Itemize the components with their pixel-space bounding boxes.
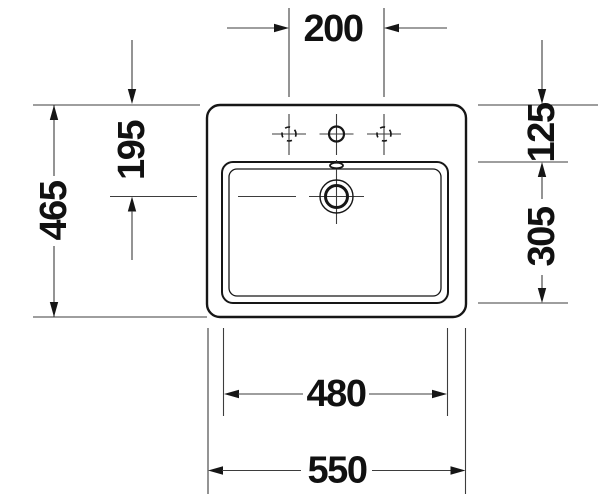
dim-label-basin-depth: 305 (521, 206, 563, 266)
dim-label-overall-width: 550 (308, 450, 367, 492)
faucet-holes (272, 114, 401, 155)
arrowhead-right-icon (274, 24, 289, 32)
arrowhead-left-icon (384, 24, 399, 32)
arrowhead-right-icon (432, 390, 447, 398)
dimension-basin-width: 480 (224, 328, 448, 416)
basin-inner-wall (229, 169, 441, 296)
arrowhead-right-icon (451, 466, 466, 474)
dimension-right-side: 125 305 (478, 40, 598, 303)
arrowhead-down-icon (50, 302, 58, 317)
dim-label-overall-depth: 465 (33, 180, 75, 240)
drawing-canvas: 200 195 465 125 305 (0, 0, 600, 500)
arrowhead-left-icon (208, 466, 223, 474)
dim-label-rim-to-basin: 125 (521, 102, 563, 162)
faucet-hole-center-icon (320, 114, 354, 155)
arrowhead-left-icon (224, 390, 239, 398)
arrowhead-up-icon (128, 197, 136, 212)
arrowhead-down-icon (538, 89, 546, 104)
washbasin-technical-drawing: 200 195 465 125 305 (0, 0, 600, 500)
dim-label-basin-width: 480 (307, 373, 366, 415)
basin-outer-wall (222, 162, 448, 303)
arrowhead-down-icon (538, 288, 546, 303)
arrowhead-up-icon (50, 105, 58, 120)
overflow-slot-icon (330, 163, 343, 169)
dimension-front-to-drain: 195 (110, 40, 197, 260)
arrowhead-up-icon (538, 162, 546, 177)
arrowhead-down-icon (128, 89, 136, 104)
dimension-tap-spacing: 200 (227, 8, 447, 97)
faucet-hole-left-icon (272, 114, 306, 155)
dim-label-tap-spacing: 200 (304, 8, 363, 50)
faucet-hole-right-icon (367, 114, 401, 155)
dim-label-front-to-drain: 195 (111, 120, 153, 180)
